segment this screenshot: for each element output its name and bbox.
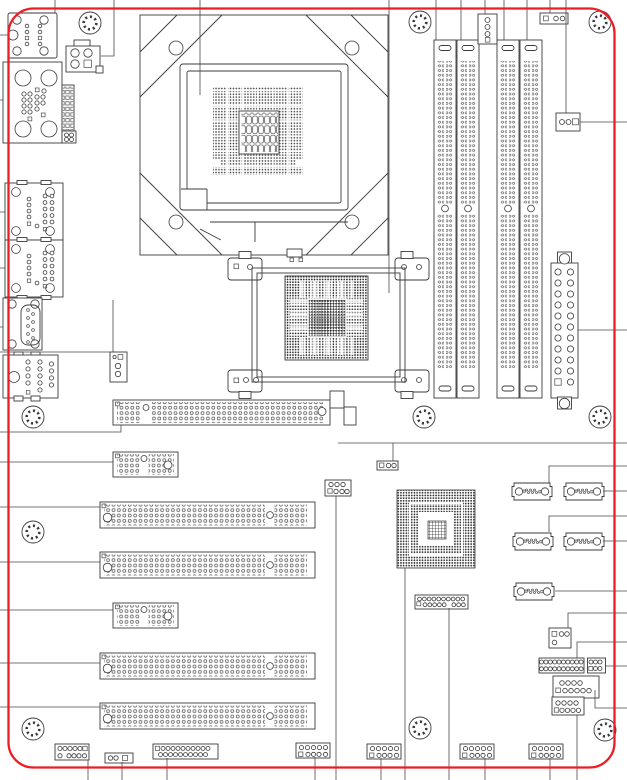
jumper-bottom: [105, 753, 133, 763]
motherboard-diagram: [0, 0, 627, 780]
ps2-keyboard-mouse-connector: [3, 62, 62, 143]
jumper-top-right: [540, 13, 568, 24]
sata-port-4: [564, 533, 604, 550]
box-header-upper: [553, 676, 599, 698]
sata-port-3: [513, 533, 553, 550]
short-slot-1: [113, 452, 178, 477]
usb-port-stack-2: [5, 238, 63, 300]
bottom-header-1: [296, 743, 330, 758]
fan-header-3pin-bottom: [549, 628, 571, 648]
pci-slot-4: [100, 703, 315, 729]
pin-header-2x10-center: [415, 595, 468, 609]
fan-header-3pin-right: [556, 113, 580, 131]
dimm-slot-4: [520, 40, 542, 398]
dense-header-2x10: [539, 658, 584, 673]
atx12v-power-connector: [66, 40, 103, 73]
super-io-chip: [397, 490, 475, 568]
sata-port-1: [512, 483, 552, 500]
dimm-slot-2: [457, 40, 479, 398]
pin-header-2x8: [62, 85, 74, 131]
rear-io-connector-stack: [8, 13, 57, 58]
jumper-3pin-center: [377, 461, 398, 470]
sata-port-5: [514, 583, 554, 600]
dimm-slot-1: [434, 40, 456, 398]
pci-slot-1: [100, 502, 315, 528]
cpu-socket: [140, 15, 388, 262]
northbridge-chip: [285, 276, 368, 360]
usb-port-stack-1: [5, 181, 63, 243]
pin-header-2x4: [325, 480, 351, 496]
dense-header-2x3: [588, 658, 606, 673]
board-figure: [0, 0, 627, 780]
pci-slot-2: [100, 552, 315, 578]
dimm-slot-3: [497, 40, 519, 398]
fan-header-4pin: [478, 14, 497, 44]
sata-port-2: [564, 483, 604, 500]
isa-slot: [113, 391, 356, 425]
bottom-header-3: [460, 744, 494, 759]
box-header-lower: [552, 697, 584, 715]
short-slot-2: [113, 603, 178, 628]
front-panel-header-a: [55, 744, 89, 760]
audio-3pin-header: [110, 352, 127, 382]
pci-slot-3: [100, 653, 315, 679]
bottom-header-2: [367, 744, 401, 759]
audio-jack-block: [3, 352, 58, 401]
socket-bottom-tab: [287, 249, 303, 262]
bottom-header-4: [529, 744, 563, 759]
front-panel-header-2x11: [153, 744, 218, 759]
cpu-socket-center: [239, 111, 279, 154]
pin-header-2x2: [62, 131, 76, 143]
atx-power-connector: [551, 252, 578, 409]
